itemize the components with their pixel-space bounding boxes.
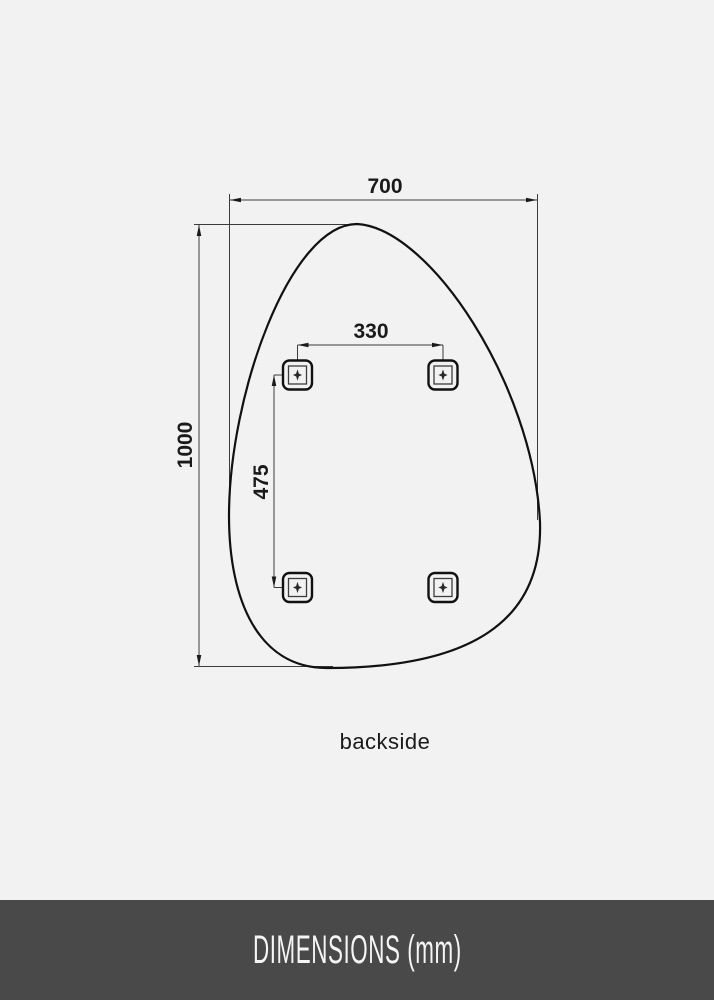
arrowhead-475-top-icon: [272, 375, 277, 386]
arrowhead-475-bottom-icon: [272, 577, 277, 588]
footer-bar: DIMENSIONS (mm): [0, 900, 714, 1000]
caption-backside: backside: [340, 729, 431, 754]
mounting-bracket-bottom-left: [283, 573, 312, 602]
label-overall-width: 700: [367, 175, 402, 198]
arrowhead-height-top-icon: [197, 225, 202, 236]
page: 700 1000 330 475: [0, 0, 714, 1000]
arrowhead-width-left-icon: [230, 198, 241, 203]
arrowhead-330-left-icon: [298, 343, 309, 348]
diagram-canvas: 700 1000 330 475: [0, 0, 714, 900]
mounting-bracket-top-right: [429, 361, 458, 390]
mirror-outline: [229, 224, 540, 668]
arrowhead-330-right-icon: [432, 343, 443, 348]
label-bracket-spacing-vertical: 475: [250, 464, 273, 499]
mirror-dimension-diagram: 700 1000 330 475: [0, 0, 714, 900]
mounting-bracket-bottom-right: [429, 573, 458, 602]
arrowhead-height-bottom-icon: [197, 655, 202, 666]
label-overall-height: 1000: [174, 422, 197, 469]
mounting-bracket-top-left: [283, 361, 312, 390]
arrowhead-width-right-icon: [526, 198, 537, 203]
footer-title: DIMENSIONS (mm): [253, 928, 462, 973]
label-bracket-spacing-horizontal: 330: [353, 320, 388, 343]
